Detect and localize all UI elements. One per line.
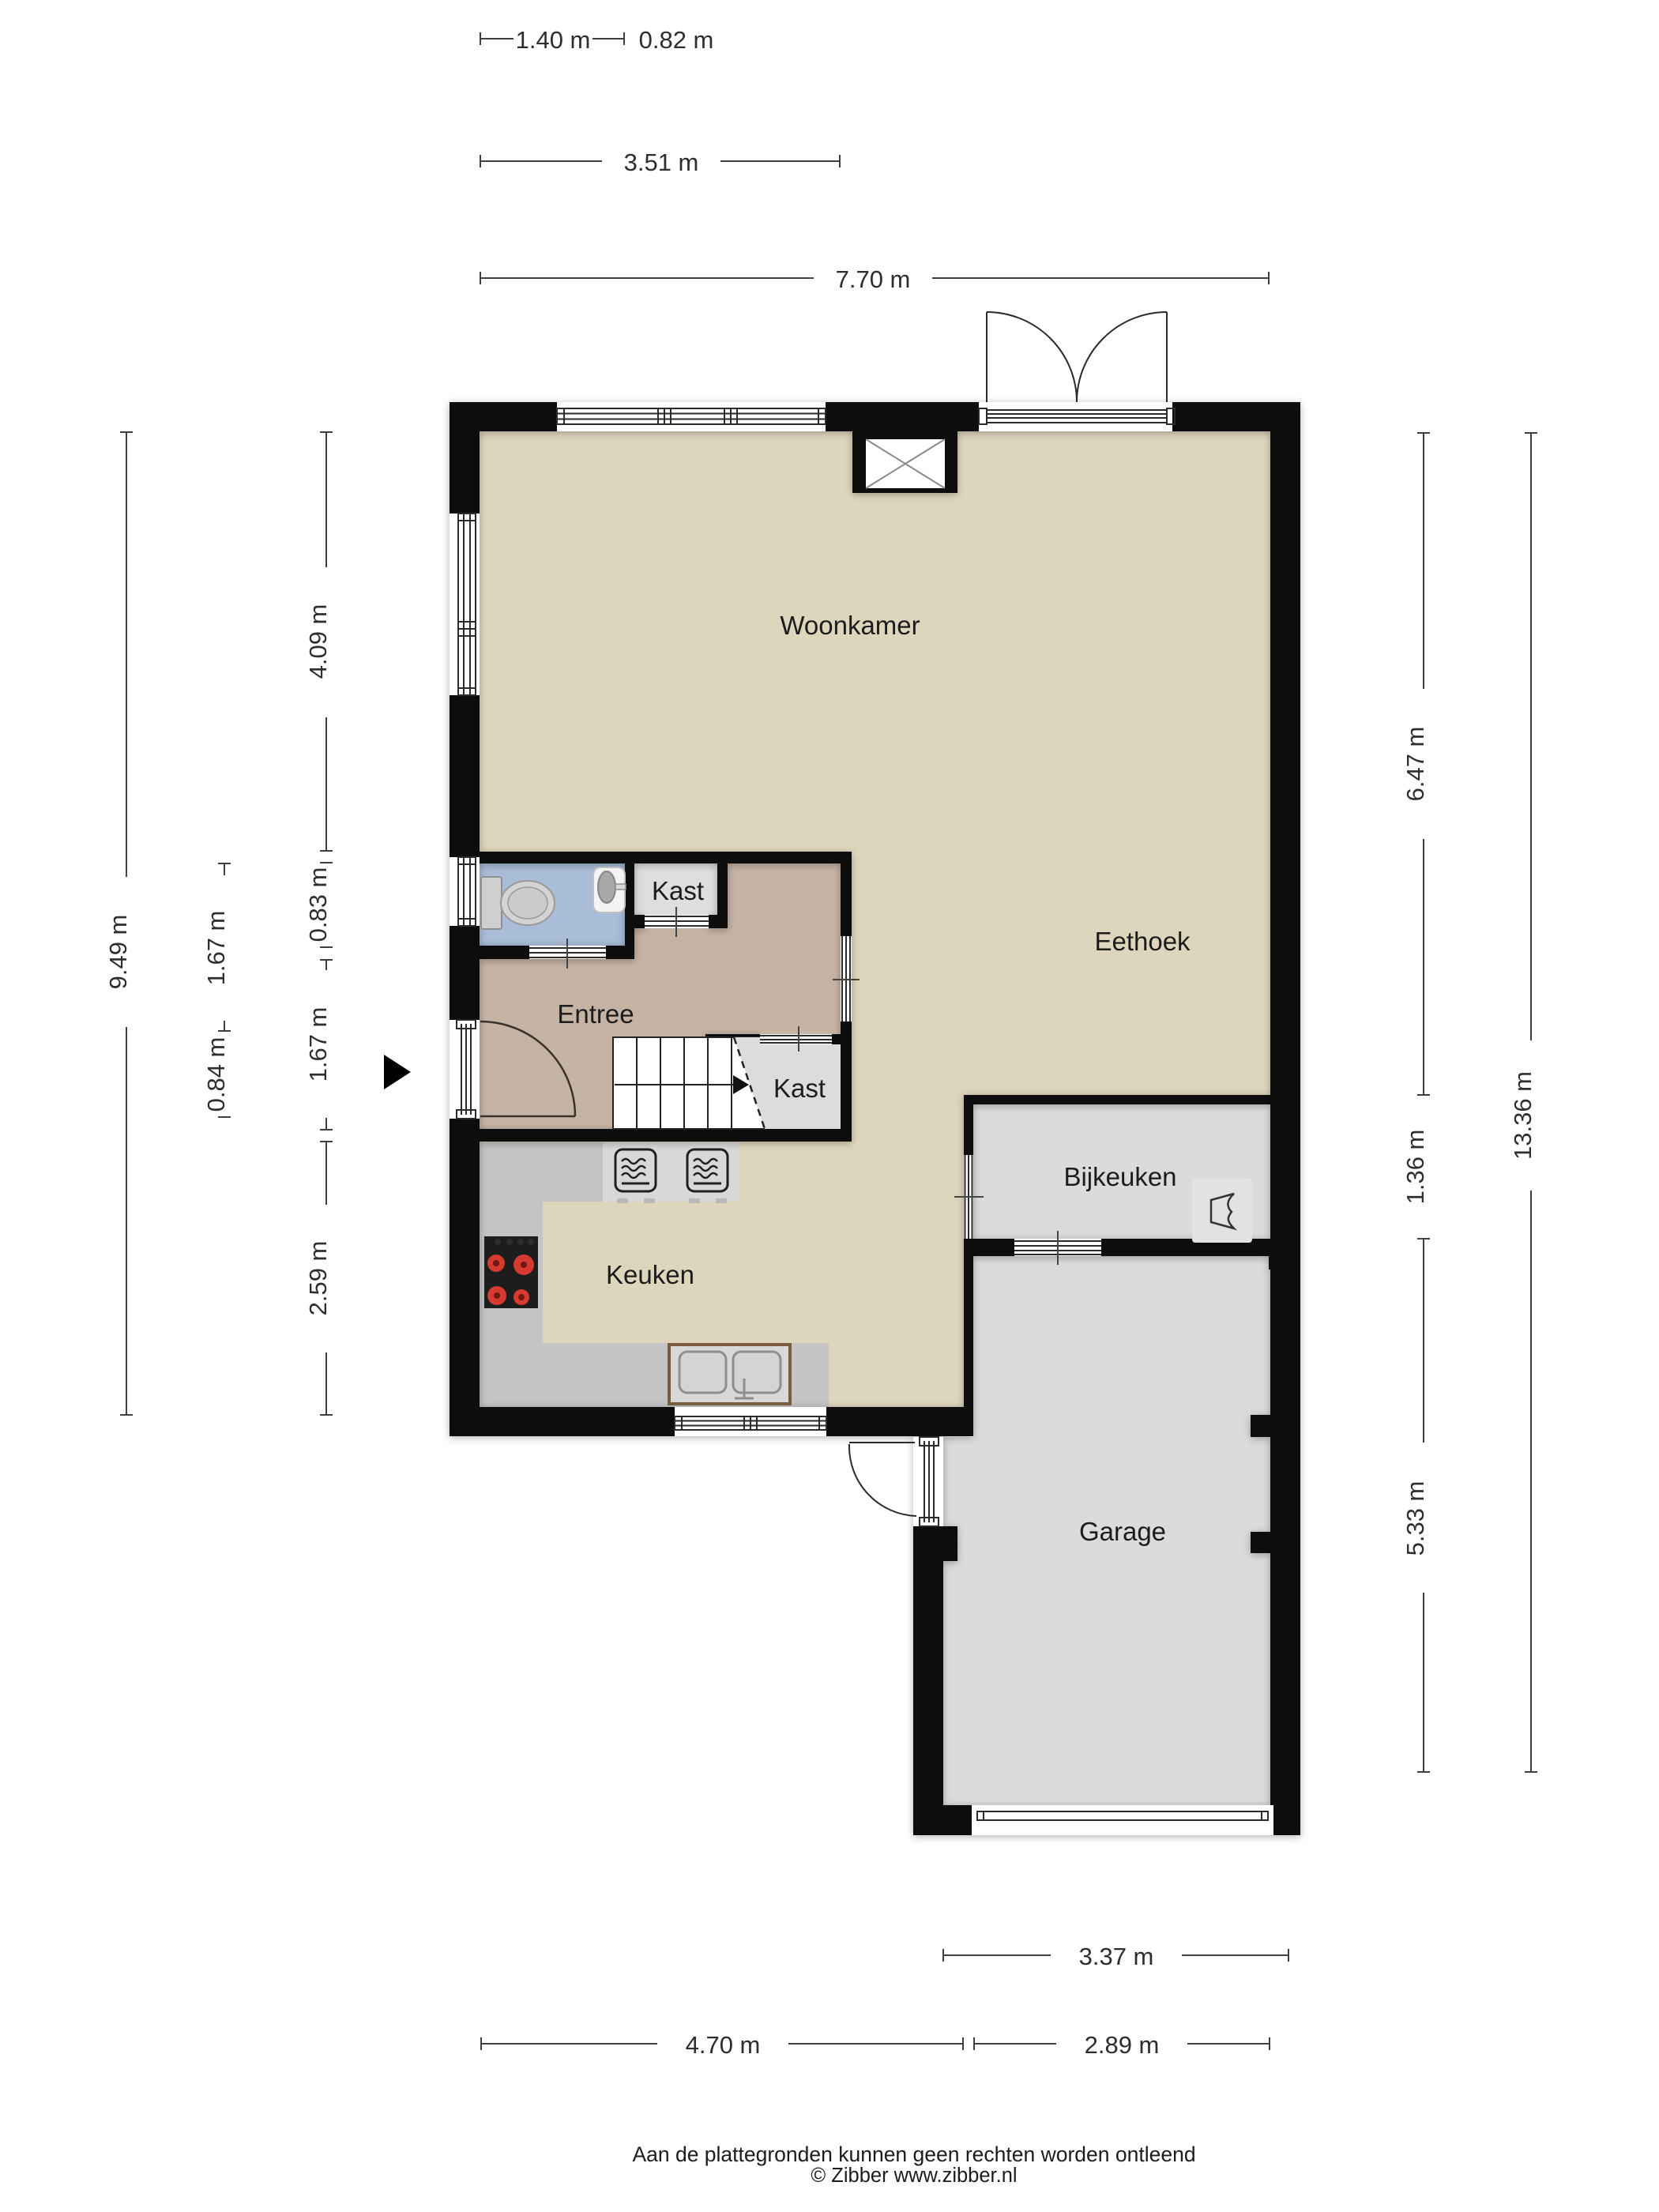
svg-text:Woonkamer: Woonkamer	[780, 611, 920, 640]
svg-text:Keuken: Keuken	[606, 1260, 694, 1289]
svg-text:4.70 m: 4.70 m	[686, 2031, 761, 2059]
svg-text:0.84 m: 0.84 m	[202, 1037, 230, 1112]
svg-text:1.67 m: 1.67 m	[304, 1007, 332, 1082]
svg-text:Kast: Kast	[773, 1074, 826, 1103]
svg-text:Entree: Entree	[557, 999, 634, 1029]
svg-text:6.47 m: 6.47 m	[1401, 727, 1429, 802]
svg-text:Eethoek: Eethoek	[1094, 927, 1191, 956]
svg-text:© Zibber www.zibber.nl: © Zibber www.zibber.nl	[811, 2165, 1017, 2187]
svg-text:Kast: Kast	[652, 876, 704, 905]
svg-text:Bijkeuken: Bijkeuken	[1063, 1162, 1176, 1191]
svg-text:0.83 m: 0.83 m	[304, 867, 332, 942]
svg-text:Garage: Garage	[1079, 1517, 1166, 1546]
svg-text:7.70 m: 7.70 m	[836, 265, 911, 293]
svg-text:4.09 m: 4.09 m	[304, 604, 332, 679]
svg-text:0.82 m: 0.82 m	[639, 26, 714, 54]
svg-text:3.37 m: 3.37 m	[1079, 1943, 1154, 1970]
svg-text:3.51 m: 3.51 m	[624, 149, 699, 176]
svg-text:Aan de plattegronden kunnen ge: Aan de plattegronden kunnen geen rechten…	[632, 2142, 1195, 2166]
svg-text:9.49 m: 9.49 m	[104, 915, 132, 990]
svg-text:1.40 m: 1.40 m	[516, 26, 591, 54]
svg-text:2.59 m: 2.59 m	[304, 1241, 332, 1316]
svg-text:5.33 m: 5.33 m	[1401, 1481, 1429, 1556]
svg-text:1.67 m: 1.67 m	[202, 911, 230, 986]
svg-text:1.36 m: 1.36 m	[1401, 1130, 1429, 1205]
svg-text:2.89 m: 2.89 m	[1085, 2031, 1160, 2059]
svg-text:13.36 m: 13.36 m	[1509, 1071, 1537, 1160]
